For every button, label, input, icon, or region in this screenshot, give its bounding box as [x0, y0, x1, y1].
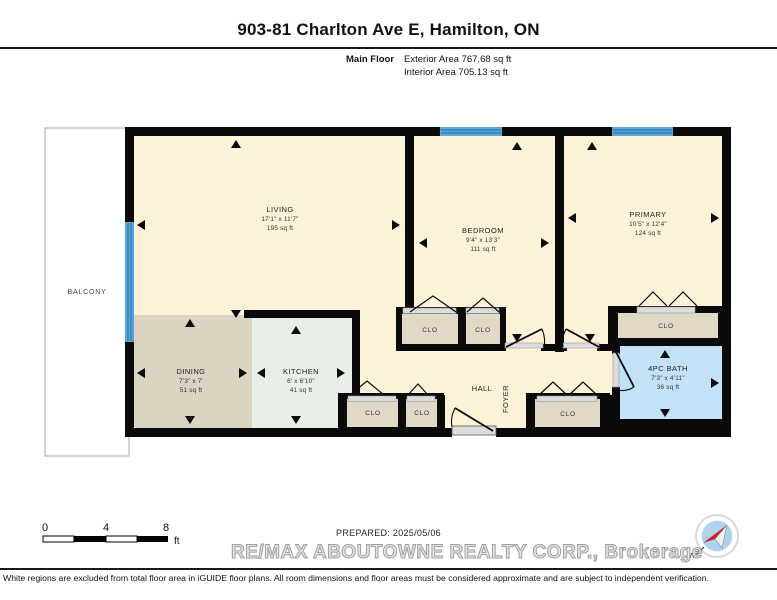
living-dims: 17'1" x 11'7": [261, 216, 298, 223]
dining-area: 51 sq ft: [180, 387, 203, 394]
closet-label: CLO: [422, 327, 437, 334]
primary-label: PRIMARY: [629, 210, 666, 219]
primary-area: 124 sq ft: [635, 230, 661, 237]
prepared-date: PREPARED: 2025/05/06: [0, 528, 777, 538]
bath-area: 36 sq ft: [657, 384, 680, 391]
bedroom-window: [440, 127, 502, 136]
closet-label: CLO: [414, 410, 429, 417]
footer-divider: [0, 568, 777, 570]
kitchen-label: KITCHEN: [283, 367, 319, 376]
dining-dims: 7'3" x 7': [179, 378, 203, 385]
balcony-window: [125, 222, 134, 342]
closet-label: CLO: [475, 327, 490, 334]
floorplan-page: 903-81 Charlton Ave E, Hamilton, ON Main…: [0, 0, 777, 600]
primary-dims: 10'5" x 12'4": [629, 221, 667, 228]
bedroom-area: 111 sq ft: [470, 246, 495, 253]
floor-plan: BALCONY: [0, 0, 777, 600]
balcony-label: BALCONY: [67, 289, 106, 296]
primary-window: [612, 127, 673, 136]
dining-label: DINING: [177, 367, 206, 376]
disclaimer-text: White regions are excluded from total fl…: [3, 573, 773, 583]
living-area: 195 sq ft: [267, 225, 293, 232]
living-label: LIVING: [266, 205, 293, 214]
closet-label: CLO: [658, 323, 673, 330]
balcony: BALCONY: [45, 128, 129, 456]
kitchen-area: 41 sq ft: [290, 387, 313, 394]
bedroom-dims: 9'4" x 13'3": [466, 237, 500, 244]
bath-dims: 7'3" x 4'11": [651, 375, 684, 382]
bedroom-label: BEDROOM: [462, 226, 504, 235]
room-floors: [134, 136, 722, 428]
hall-label: HALL: [472, 384, 493, 393]
closet-label: CLO: [365, 410, 380, 417]
kitchen-dims: 6' x 6'10": [287, 378, 315, 385]
foyer-label: FOYER: [501, 385, 510, 413]
closet-label: CLO: [560, 411, 575, 418]
brokerage-watermark: RE/MAX ABOUTOWNE REALTY CORP., Brokerage: [231, 542, 703, 564]
bath-label: 4PC BATH: [648, 364, 688, 373]
